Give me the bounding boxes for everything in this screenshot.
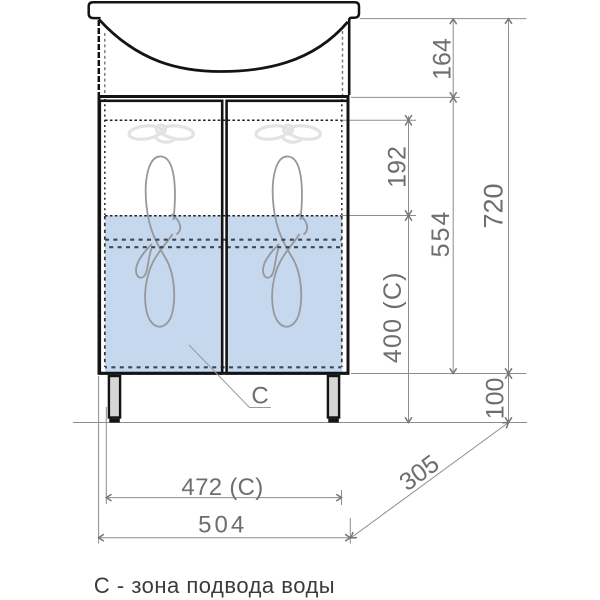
svg-text:C: C [251, 383, 268, 410]
svg-text:164: 164 [429, 38, 457, 80]
svg-text:192: 192 [384, 146, 412, 188]
svg-text:472 (C): 472 (C) [181, 474, 263, 501]
svg-text:554: 554 [427, 210, 455, 258]
svg-text:504: 504 [198, 512, 247, 539]
svg-text:720: 720 [478, 183, 508, 228]
svg-text:С - зона подвода воды: С - зона подвода воды [94, 573, 335, 598]
svg-text:400 (C): 400 (C) [379, 271, 407, 363]
svg-text:100: 100 [482, 378, 510, 420]
